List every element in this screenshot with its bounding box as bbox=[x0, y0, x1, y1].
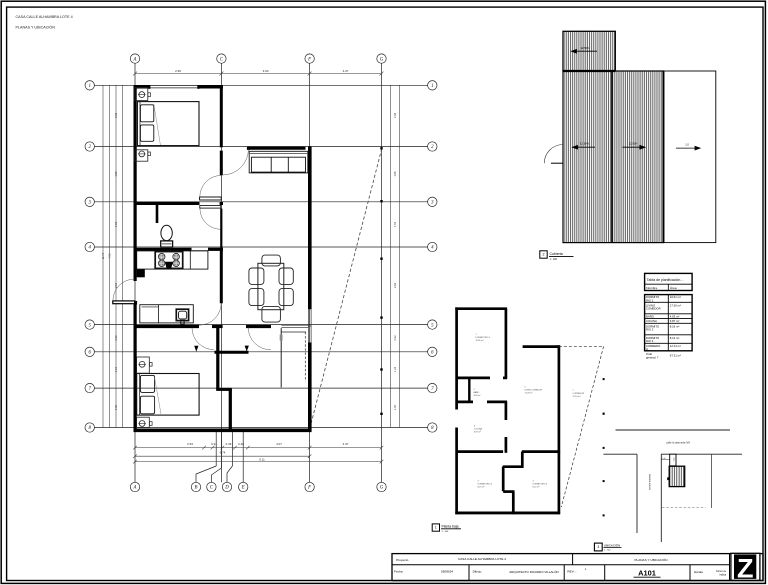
svg-text:4.03 m²: 4.03 m² bbox=[474, 394, 481, 397]
svg-text:Cubierta: Cubierta bbox=[550, 252, 563, 256]
svg-text:9.11: 9.11 bbox=[259, 457, 265, 461]
svg-text:1.89: 1.89 bbox=[393, 171, 397, 177]
svg-text:12.13 m²: 12.13 m² bbox=[670, 344, 681, 348]
svg-text:CASA CALLE ALHAMBRA LOTE 4: CASA CALLE ALHAMBRA LOTE 4 bbox=[16, 15, 73, 19]
svg-text:G: G bbox=[380, 486, 384, 491]
svg-text:17.26 m²: 17.26 m² bbox=[525, 392, 533, 395]
svg-text:E: E bbox=[241, 486, 245, 491]
svg-text:A101: A101 bbox=[638, 568, 656, 577]
svg-text:Fecha: Fecha bbox=[394, 570, 403, 574]
svg-text:1: 1 bbox=[88, 84, 90, 89]
svg-text:4.03 m²: 4.03 m² bbox=[670, 314, 680, 318]
svg-text:1 : 100: 1 : 100 bbox=[442, 531, 449, 533]
svg-text:1: 1 bbox=[435, 526, 437, 530]
svg-text:F: F bbox=[307, 57, 311, 62]
svg-text:Dibujo: Dibujo bbox=[473, 570, 482, 574]
svg-text:G: G bbox=[380, 57, 384, 62]
svg-text:general: 7: general: 7 bbox=[646, 355, 659, 359]
svg-text:2: 2 bbox=[543, 253, 545, 257]
svg-text:Nombre: Nombre bbox=[646, 286, 657, 290]
svg-text:R: R bbox=[646, 348, 648, 352]
svg-text:severo moreira: severo moreira bbox=[648, 473, 651, 490]
svg-text:Tabla de planificación…: Tabla de planificación… bbox=[647, 278, 684, 282]
svg-text:B: B bbox=[195, 486, 198, 491]
svg-text:05/08/24: 05/08/24 bbox=[441, 570, 453, 574]
svg-text:7.02: 7.02 bbox=[108, 253, 112, 259]
svg-text:Escala: Escala bbox=[694, 570, 703, 574]
svg-text:CASA CALLE ALHAMBRA LOTE 4: CASA CALLE ALHAMBRA LOTE 4 bbox=[458, 557, 506, 561]
svg-text:indica: indica bbox=[719, 573, 726, 576]
svg-text:CORREDOR: CORREDOR bbox=[573, 393, 585, 395]
svg-text:calle la alameda NN: calle la alameda NN bbox=[666, 440, 690, 444]
svg-text:3: 3 bbox=[597, 545, 599, 549]
svg-text:DORMITORIO 2: DORMITORIO 2 bbox=[478, 484, 494, 486]
svg-text:DORMITORIO 3: DORMITORIO 3 bbox=[533, 484, 549, 486]
svg-text:A: A bbox=[133, 57, 137, 62]
svg-text:0.92: 0.92 bbox=[114, 335, 118, 341]
svg-text:1 : 750: 1 : 750 bbox=[604, 550, 611, 552]
svg-text:1.24: 1.24 bbox=[114, 366, 118, 372]
svg-text:0.36: 0.36 bbox=[226, 442, 232, 446]
svg-text:RIO 3: RIO 3 bbox=[646, 339, 654, 343]
svg-text:8.19 m²: 8.19 m² bbox=[478, 486, 485, 489]
svg-text:12.13 m²: 12.13 m² bbox=[573, 395, 581, 398]
svg-text:6.87 m²: 6.87 m² bbox=[474, 431, 481, 434]
svg-text:10.61 m²: 10.61 m² bbox=[476, 339, 484, 342]
svg-text:1.35: 1.35 bbox=[393, 404, 397, 410]
svg-text:BAÑO: BAÑO bbox=[646, 313, 655, 318]
svg-text:3.00: 3.00 bbox=[263, 69, 269, 73]
svg-text:A: A bbox=[133, 486, 137, 491]
svg-text:67.21 m²: 67.21 m² bbox=[670, 354, 681, 358]
svg-text:F: F bbox=[307, 486, 311, 491]
svg-text:COCINA: COCINA bbox=[646, 319, 657, 323]
svg-text:8.19 m²: 8.19 m² bbox=[670, 324, 680, 328]
svg-text:1 : 100: 1 : 100 bbox=[550, 258, 558, 261]
svg-text:DORMITORIO 1: DORMITORIO 1 bbox=[476, 337, 492, 339]
svg-text:17.26 m²: 17.26 m² bbox=[670, 303, 681, 307]
svg-text:1: 1 bbox=[431, 84, 433, 89]
svg-text:8.12 m²: 8.12 m² bbox=[533, 486, 540, 489]
svg-text:0.48: 0.48 bbox=[238, 442, 244, 446]
svg-text:PLANAS Y UBICACIÓN: PLANAS Y UBICACIÓN bbox=[16, 25, 56, 30]
svg-text:8.12 m²: 8.12 m² bbox=[670, 336, 680, 340]
svg-text:COMEDOR: COMEDOR bbox=[646, 307, 661, 311]
svg-text:BAÑO: BAÑO bbox=[474, 391, 480, 394]
svg-text:4.37: 4.37 bbox=[343, 442, 349, 446]
svg-text:6.74: 6.74 bbox=[220, 451, 226, 455]
svg-text:RIO 2: RIO 2 bbox=[646, 328, 654, 332]
svg-text:2.08: 2.08 bbox=[393, 112, 397, 118]
svg-text:PLANAS Y UBICACIÓN: PLANAS Y UBICACIÓN bbox=[634, 557, 667, 562]
svg-text:10.61 m²: 10.61 m² bbox=[670, 295, 681, 299]
svg-text:1.53: 1.53 bbox=[114, 221, 118, 227]
svg-text:ARQUITECTO RICARDO VILLALÓN: ARQUITECTO RICARDO VILLALÓN bbox=[509, 569, 558, 574]
svg-text:12.50%: 12.50% bbox=[581, 46, 590, 50]
svg-text:RIO 1: RIO 1 bbox=[646, 299, 654, 303]
svg-text:1.89: 1.89 bbox=[114, 171, 118, 177]
svg-text:LIVING COMEDOR: LIVING COMEDOR bbox=[525, 390, 543, 392]
svg-text:4.37: 4.37 bbox=[343, 69, 349, 73]
svg-text:2.08: 2.08 bbox=[114, 112, 118, 118]
svg-text:2.96: 2.96 bbox=[175, 69, 181, 73]
svg-text:6.87 m²: 6.87 m² bbox=[670, 319, 680, 323]
svg-text:2.64: 2.64 bbox=[393, 282, 397, 288]
svg-text:D: D bbox=[224, 486, 229, 491]
svg-text:0.31: 0.31 bbox=[211, 442, 217, 446]
svg-text:1.24: 1.24 bbox=[393, 366, 397, 372]
svg-text:Área: Área bbox=[670, 286, 677, 290]
svg-text:CORREDO: CORREDO bbox=[646, 344, 661, 348]
svg-text:COCINA: COCINA bbox=[474, 428, 482, 431]
svg-text:1.53: 1.53 bbox=[393, 221, 397, 227]
svg-text:12.50%: 12.50% bbox=[629, 142, 638, 146]
svg-text:UBICACIÓN: UBICACIÓN bbox=[604, 542, 620, 547]
svg-text:2.53: 2.53 bbox=[187, 442, 193, 446]
svg-text:REV: -: REV: - bbox=[567, 570, 576, 574]
svg-text:4.07: 4.07 bbox=[276, 442, 282, 446]
svg-text:1.0: 1.0 bbox=[685, 143, 689, 147]
svg-text:1.35: 1.35 bbox=[114, 404, 118, 410]
svg-text:0.92: 0.92 bbox=[393, 335, 397, 341]
svg-text:Planta baja: Planta baja bbox=[442, 525, 459, 529]
svg-text:11.70: 11.70 bbox=[101, 252, 105, 259]
svg-text:Proyecto: Proyecto bbox=[396, 558, 408, 562]
svg-text:Z: Z bbox=[737, 553, 754, 583]
svg-text:12.50%: 12.50% bbox=[580, 142, 589, 146]
